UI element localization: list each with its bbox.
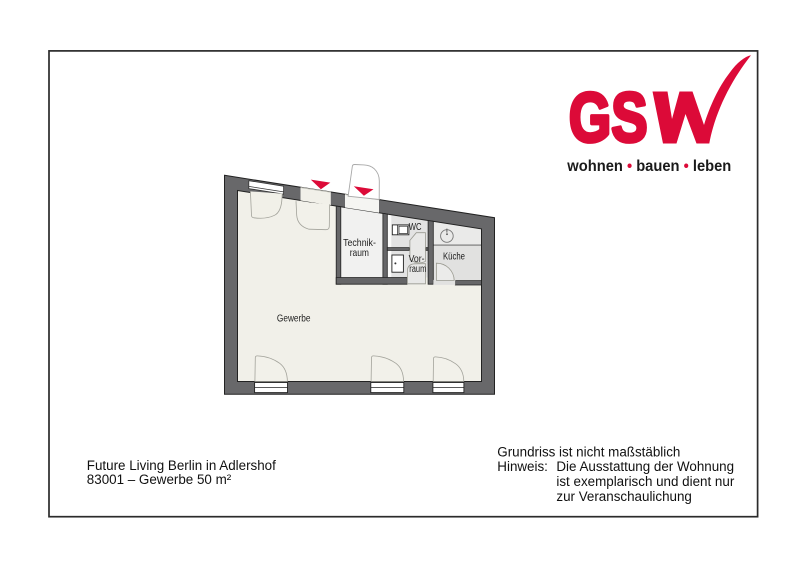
svg-text:Future Living Berlin in Adlers: Future Living Berlin in Adlershof <box>87 458 276 473</box>
svg-text:zur Veranschaulichung: zur Veranschaulichung <box>556 489 691 504</box>
svg-text:Die Ausstattung der Wohnung: Die Ausstattung der Wohnung <box>556 459 734 474</box>
svg-text:Gewerbe: Gewerbe <box>277 312 311 324</box>
svg-text:wohnen • bauen • leben: wohnen • bauen • leben <box>566 158 731 175</box>
svg-text:Hinweis:: Hinweis: <box>497 459 548 474</box>
svg-text:Küche: Küche <box>443 250 465 262</box>
svg-text:Vor-: Vor- <box>409 254 425 265</box>
svg-text:raum: raum <box>350 247 369 259</box>
svg-text:GS: GS <box>569 79 648 157</box>
svg-text:Grundriss ist nicht maßstäblic: Grundriss ist nicht maßstäblich <box>497 444 680 459</box>
svg-text:83001 – Gewerbe 50 m²: 83001 – Gewerbe 50 m² <box>87 472 232 487</box>
svg-text:WC: WC <box>409 221 422 233</box>
svg-text:raum: raum <box>409 264 426 275</box>
svg-text:ist exemplarisch und dient nur: ist exemplarisch und dient nur <box>556 474 734 489</box>
